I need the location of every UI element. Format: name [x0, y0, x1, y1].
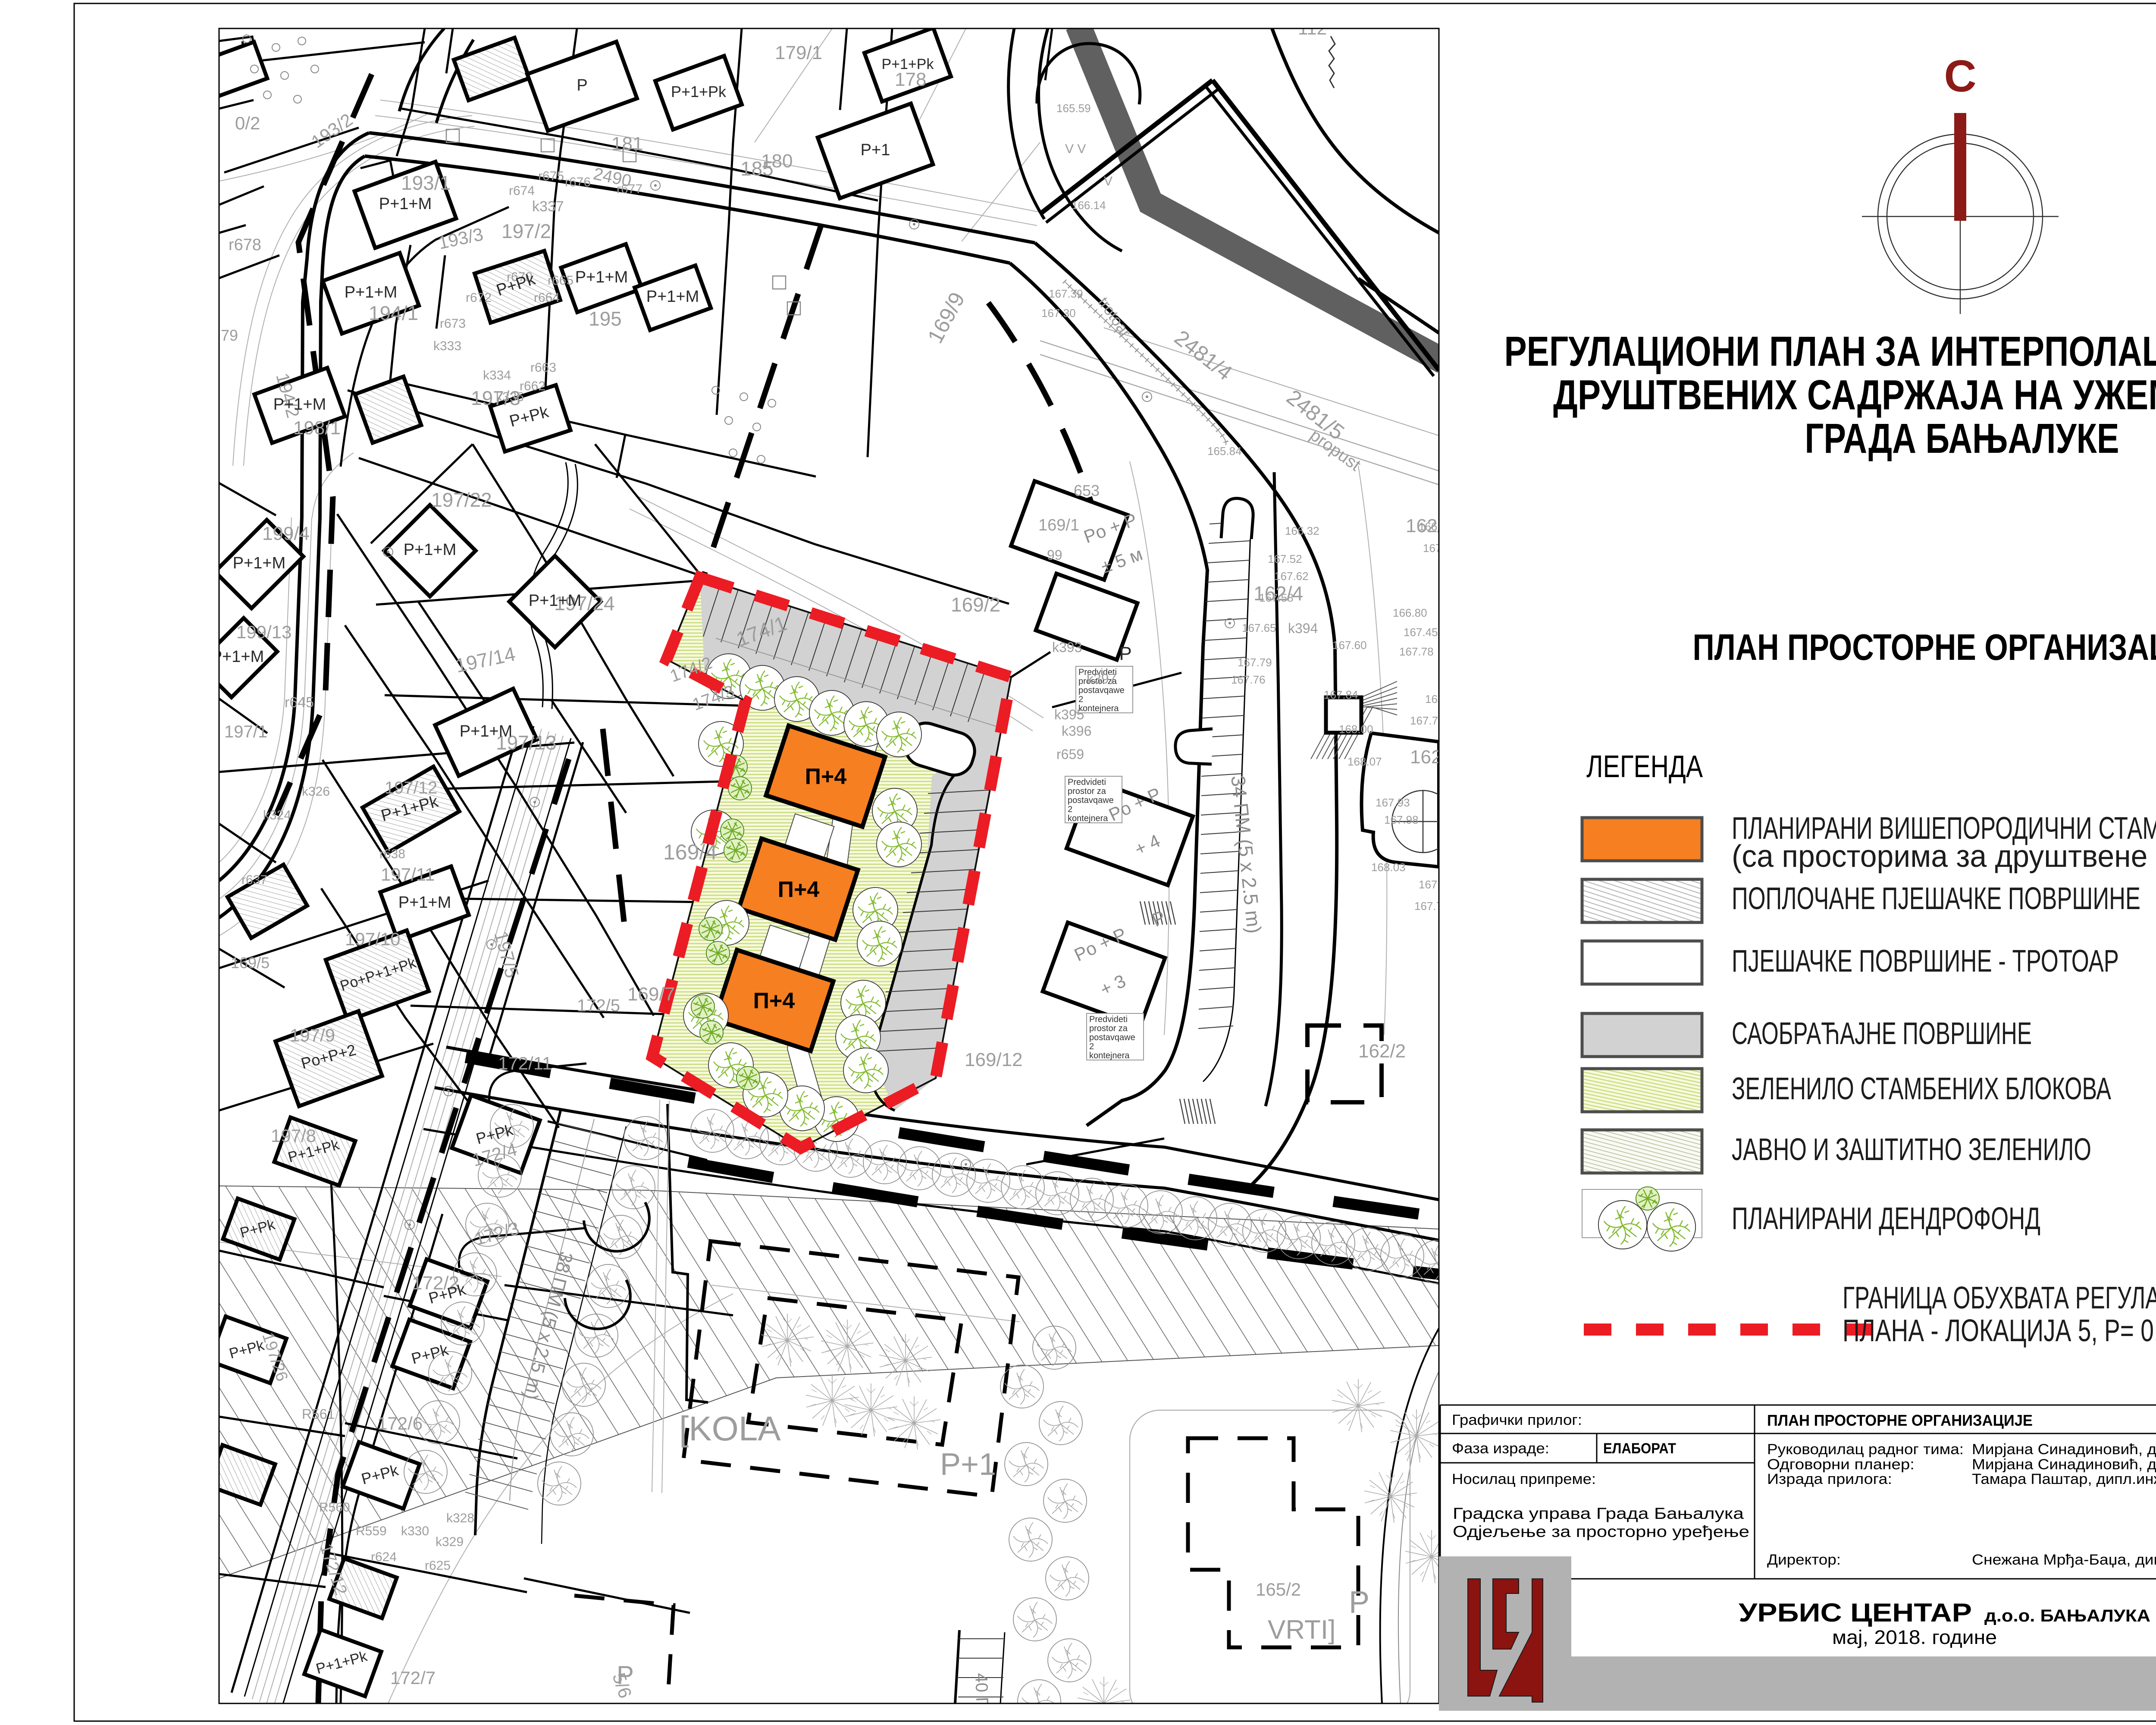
svg-text:k394: k394 [1288, 621, 1318, 636]
svg-text:P+1+M: P+1+M [345, 283, 398, 301]
svg-text:P+1+M: P+1+M [529, 592, 582, 610]
svg-text:169/4: 169/4 [663, 840, 717, 864]
svg-text:P+1: P+1 [940, 1447, 996, 1482]
svg-text:P: P [1349, 1585, 1369, 1620]
svg-text:2: 2 [1089, 1042, 1094, 1051]
svg-text:167.7: 167.7 [1410, 714, 1438, 727]
svg-text:199/13: 199/13 [236, 622, 291, 642]
svg-text:172/5: 172/5 [577, 996, 620, 1015]
svg-text:172/6: 172/6 [377, 1413, 423, 1433]
svg-text:195: 195 [589, 307, 622, 330]
svg-text:Predvideti: Predvideti [1089, 1015, 1128, 1024]
svg-text:r673: r673 [440, 317, 466, 331]
svg-text:0/2: 0/2 [235, 113, 260, 133]
svg-text:r665: r665 [548, 273, 573, 288]
svg-text:167.65: 167.65 [1242, 621, 1276, 634]
svg-text:R559: R559 [356, 1524, 387, 1538]
svg-text:r624: r624 [371, 1550, 397, 1564]
svg-text:Predvideti: Predvideti [1068, 778, 1106, 787]
svg-text:r662: r662 [520, 379, 545, 393]
svg-text:ПЛАН ПРОСТОРНЕ ОРГАНИЗАЦИЈЕ: ПЛАН ПРОСТОРНЕ ОРГАНИЗАЦИЈЕ [1767, 1411, 2033, 1429]
svg-text:168.03: 168.03 [1371, 861, 1406, 874]
svg-text:169/2: 169/2 [951, 593, 1000, 616]
svg-text:Носилац припреме:: Носилац припреме: [1452, 1471, 1596, 1487]
svg-text:172/7: 172/7 [390, 1668, 436, 1688]
svg-text:П+4: П+4 [778, 877, 820, 902]
svg-text:198/1: 198/1 [293, 417, 341, 439]
svg-text:193/1: 193/1 [401, 172, 451, 194]
svg-text:r676: r676 [565, 175, 591, 189]
svg-text:r675: r675 [538, 169, 564, 183]
svg-text:k328: k328 [446, 1511, 474, 1525]
svg-text:r645: r645 [285, 694, 314, 711]
svg-text:197/9: 197/9 [290, 1025, 335, 1045]
svg-text:ЛЕГЕНДА: ЛЕГЕНДА [1586, 750, 1703, 784]
svg-text:2: 2 [1078, 695, 1083, 704]
svg-text:ПЛАНА - ЛОКАЦИЈА 5, P= 0.37 ha: ПЛАНА - ЛОКАЦИЈА 5, P= 0.37 ha [1843, 1314, 2156, 1348]
svg-text:167.45: 167.45 [1404, 626, 1438, 639]
svg-text:169/5: 169/5 [231, 954, 269, 972]
svg-text:Фаза израде:: Фаза израде: [1452, 1440, 1549, 1457]
svg-text:165/2: 165/2 [1256, 1579, 1301, 1600]
svg-text:САОБРАЋАЈНЕ ПОВРШИНЕ: САОБРАЋАЈНЕ ПОВРШИНЕ [1732, 1016, 2032, 1051]
svg-text:V: V [1104, 174, 1112, 188]
svg-text:P: P [577, 76, 587, 94]
svg-text:r678: r678 [229, 236, 261, 254]
svg-text:P: P [1119, 643, 1131, 664]
svg-text:ГРАНИЦА ОБУХВАТА РЕГУЛАЦИОНОГ: ГРАНИЦА ОБУХВАТА РЕГУЛАЦИОНОГ [1843, 1281, 2156, 1315]
svg-text:180: 180 [761, 151, 793, 172]
svg-text:k329: k329 [436, 1535, 464, 1549]
svg-text:r674: r674 [509, 184, 535, 198]
svg-text:P+1+Pk: P+1+Pk [671, 83, 727, 100]
svg-text:167.30: 167.30 [1041, 307, 1076, 320]
svg-text:169/12: 169/12 [965, 1049, 1023, 1070]
svg-text:Снежана Мрђа-Баџа, дипл.инж.ар: Снежана Мрђа-Баџа, дипл.инж.арх. [1972, 1552, 2156, 1568]
svg-text:k395: k395 [1054, 707, 1084, 722]
svg-text:r677: r677 [617, 182, 642, 196]
svg-text:ПОПЛОЧАНЕ ПЈЕШАЧКЕ ПОВРШИНЕ: ПОПЛОЧАНЕ ПЈЕШАЧКЕ ПОВРШИНЕ [1732, 881, 2140, 916]
svg-text:k334: k334 [483, 368, 511, 383]
svg-text:167.76: 167.76 [1231, 673, 1266, 686]
svg-text:r637: r637 [241, 873, 267, 887]
svg-text:ЕЛАБОРАТ: ЕЛАБОРАТ [1603, 1440, 1676, 1457]
svg-text:С: С [1944, 51, 1976, 101]
svg-text:prostor za: prostor za [1089, 1024, 1128, 1033]
svg-text:kontejnera: kontejnera [1089, 1051, 1130, 1060]
svg-text:РЕГУЛАЦИОНИ ПЛАН ЗА ИНТЕРПОЛАЦ: РЕГУЛАЦИОНИ ПЛАН ЗА ИНТЕРПОЛАЦИЈУ ОБЈЕКА… [1504, 328, 2156, 375]
svg-text:k396: k396 [1062, 723, 1091, 739]
svg-text:П+4: П+4 [805, 764, 847, 789]
svg-text:165.84: 165.84 [1207, 445, 1242, 458]
svg-text:prostor za: prostor za [1068, 787, 1106, 796]
svg-text:P+1+M: P+1+M [273, 395, 326, 414]
svg-text:k324: k324 [263, 808, 291, 822]
svg-text:653: 653 [1074, 482, 1100, 499]
svg-text:ДРУШТВЕНИХ САДРЖАЈА НА УЖЕМ ПО: ДРУШТВЕНИХ САДРЖАЈА НА УЖЕМ ПОДРУЧЈУ [1553, 371, 2156, 418]
svg-text:199/4: 199/4 [262, 523, 310, 544]
svg-text:172/11: 172/11 [498, 1053, 552, 1073]
svg-text:kontejnera: kontejnera [1078, 704, 1119, 713]
svg-text:168.00: 168.00 [1339, 723, 1373, 736]
svg-text:2: 2 [1068, 805, 1072, 814]
svg-text:ГРАДА БАЊАЛУКЕ: ГРАДА БАЊАЛУКЕ [1805, 415, 2119, 462]
svg-text:k333: k333 [433, 339, 461, 353]
svg-text:167.39: 167.39 [1049, 287, 1083, 300]
svg-text:ПЛАНИРАНИ ДЕНДРОФОНД: ПЛАНИРАНИ ДЕНДРОФОНД [1732, 1201, 2040, 1236]
svg-text:165.59: 165.59 [1056, 102, 1091, 115]
svg-text:postavqawe: postavqawe [1078, 686, 1125, 695]
svg-text:166.32: 166.32 [1285, 524, 1319, 537]
svg-text:167.60: 167.60 [1332, 639, 1367, 652]
svg-text:167.78: 167.78 [1399, 645, 1434, 658]
svg-text:(са просторима за друштвене са: (са просторима за друштвене садржаје) [1732, 839, 2156, 874]
svg-text:[KOLA: [KOLA [679, 1409, 781, 1448]
svg-text:r625: r625 [425, 1559, 451, 1573]
svg-text:VRTI]: VRTI] [1268, 1615, 1335, 1645]
svg-text:Градска управа Града Бањалука: Градска управа Града Бањалука [1453, 1505, 1744, 1522]
svg-text:197/10: 197/10 [345, 929, 400, 949]
svg-text:Директор:: Директор: [1767, 1552, 1841, 1568]
svg-text:197/8: 197/8 [271, 1126, 316, 1146]
svg-text:167.62: 167.62 [1274, 570, 1309, 583]
svg-text:Мирјана Синадиновић, дипл.инж.: Мирјана Синадиновић, дипл.инж.арх. [1972, 1441, 2156, 1458]
svg-text:99: 99 [1047, 547, 1062, 563]
svg-text:k393: k393 [1052, 640, 1082, 655]
svg-text:162/2: 162/2 [1358, 1041, 1406, 1062]
svg-text:167.84: 167.84 [1324, 688, 1358, 701]
svg-text:R560: R560 [319, 1500, 350, 1515]
svg-text:P+1: P+1 [861, 141, 890, 159]
svg-text:k337: k337 [532, 198, 564, 215]
svg-text:П+4: П+4 [753, 988, 795, 1013]
svg-text:197/2: 197/2 [501, 220, 551, 242]
svg-text:r672: r672 [466, 291, 492, 305]
svg-text:k397: k397 [1087, 671, 1116, 687]
svg-text:УРБИС ЦЕНТАР: УРБИС ЦЕНТАР [1739, 1598, 1972, 1627]
svg-text:P+1+Pk: P+1+Pk [882, 56, 934, 72]
svg-text:P+1+M: P+1+M [404, 541, 457, 559]
svg-text:Тамара Паштар, дипл.инж.арх.: Тамара Паштар, дипл.инж.арх. [1972, 1471, 2156, 1487]
svg-text:167.98: 167.98 [1384, 813, 1419, 826]
svg-text:167.58: 167.58 [1259, 591, 1294, 604]
svg-text:167.79: 167.79 [1238, 656, 1272, 669]
svg-text:P+1+M: P+1+M [398, 894, 451, 912]
svg-text:kontejnera: kontejnera [1068, 814, 1108, 823]
svg-text:167.93: 167.93 [1376, 796, 1410, 809]
svg-text:k326: k326 [302, 784, 330, 799]
svg-text:167.52: 167.52 [1268, 552, 1302, 565]
svg-text:169/1: 169/1 [1038, 516, 1079, 534]
svg-text:r659: r659 [1056, 746, 1084, 762]
svg-text:79: 79 [221, 326, 238, 344]
svg-text:V V: V V [1065, 142, 1086, 156]
svg-text:197/22: 197/22 [431, 489, 492, 511]
svg-text:194/1: 194/1 [369, 302, 418, 324]
svg-text:k330: k330 [401, 1524, 429, 1538]
svg-text:postavqawe: postavqawe [1068, 796, 1114, 805]
svg-text:P+1+M: P+1+M [233, 554, 286, 572]
svg-text:166.14: 166.14 [1072, 199, 1106, 212]
svg-text:P+1+M: P+1+M [646, 288, 699, 306]
svg-text:R561: R561 [302, 1406, 335, 1422]
svg-text:P+1+M: P+1+M [575, 268, 628, 286]
svg-text:179/1: 179/1 [775, 42, 822, 63]
svg-text:197/1: 197/1 [224, 722, 267, 741]
svg-text:169/7: 169/7 [627, 984, 675, 1005]
svg-text:Руководилац радног тима:: Руководилац радног тима: [1767, 1441, 1964, 1458]
svg-text:Мирјана Синадиновић, дипл.инж.: Мирјана Синадиновић, дипл.инж.арх. [1972, 1456, 2156, 1473]
svg-text:P+1+M: P+1+M [379, 195, 432, 213]
svg-text:мај, 2018. године: мај, 2018. године [1832, 1626, 1997, 1648]
svg-text:r663: r663 [530, 361, 556, 375]
svg-text:ПЛАН ПРОСТОРНЕ ОРГАНИЗАЦИЈЕ: ПЛАН ПРОСТОРНЕ ОРГАНИЗАЦИЈЕ [1693, 627, 2156, 668]
svg-text:Одјељење за просторно уређење: Одјељење за просторно уређење [1453, 1523, 1749, 1540]
svg-text:postavqawe: postavqawe [1089, 1033, 1135, 1042]
svg-text:r664: r664 [534, 291, 560, 305]
svg-text:Графички прилог:: Графички прилог: [1452, 1412, 1582, 1428]
svg-text:д.о.о. БАЊАЛУКА: д.о.о. БАЊАЛУКА [1984, 1606, 2150, 1625]
svg-text:197/11: 197/11 [381, 864, 435, 884]
svg-text:P: P [617, 1661, 634, 1690]
svg-text:Одговорни планер:: Одговорни планер: [1767, 1456, 1915, 1473]
svg-text:ПЈЕШАЧКЕ ПОВРШИНЕ - ТРОТОАР: ПЈЕШАЧКЕ ПОВРШИНЕ - ТРОТОАР [1732, 944, 2119, 979]
svg-text:181: 181 [611, 133, 643, 154]
svg-text:r638: r638 [379, 847, 405, 861]
svg-text:ЗЕЛЕНИЛО СТАМБЕНИХ БЛОКОВА: ЗЕЛЕНИЛО СТАМБЕНИХ БЛОКОВА [1732, 1072, 2111, 1106]
svg-text:166.80: 166.80 [1393, 606, 1427, 619]
svg-text:Израда прилога:: Израда прилога: [1767, 1471, 1892, 1487]
svg-text:P+1+M: P+1+M [460, 722, 513, 740]
svg-text:168.07: 168.07 [1347, 755, 1382, 768]
svg-text:ЈАВНО И ЗАШТИТНО ЗЕЛЕНИЛО: ЈАВНО И ЗАШТИТНО ЗЕЛЕНИЛО [1732, 1132, 2091, 1167]
